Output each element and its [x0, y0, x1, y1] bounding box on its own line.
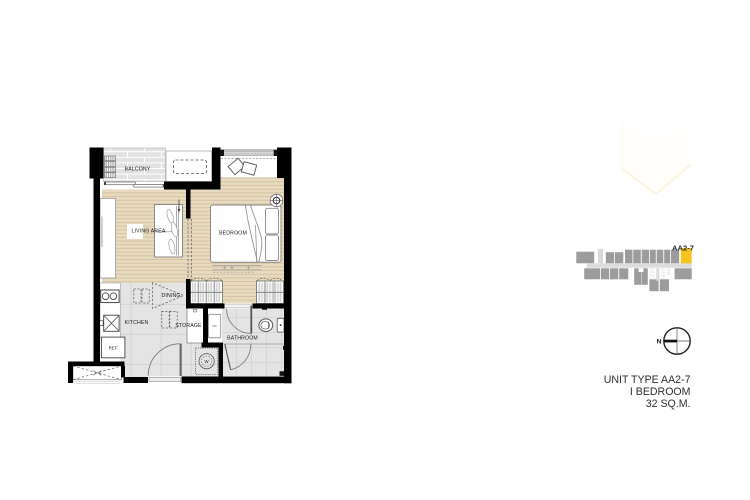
svg-text:UNIT TYPE AA2-7: UNIT TYPE AA2-7	[604, 374, 691, 386]
svg-text:AA2-7: AA2-7	[672, 244, 694, 253]
svg-text:REF: REF	[109, 345, 118, 350]
svg-text:LIVING AREA: LIVING AREA	[132, 228, 166, 234]
svg-text:BEDROOM: BEDROOM	[219, 231, 247, 237]
svg-text:STORAGE: STORAGE	[175, 323, 202, 329]
svg-text:BATHROOM: BATHROOM	[227, 336, 258, 342]
svg-text:DINING: DINING	[161, 293, 180, 299]
svg-text:I BEDROOM: I BEDROOM	[630, 386, 691, 398]
svg-text:W: W	[204, 359, 209, 364]
svg-text:N: N	[657, 339, 662, 346]
svg-text:KITCHEN: KITCHEN	[125, 320, 149, 326]
svg-text:BALCONY: BALCONY	[125, 167, 151, 173]
svg-text:32 SQ.M.: 32 SQ.M.	[646, 398, 691, 410]
